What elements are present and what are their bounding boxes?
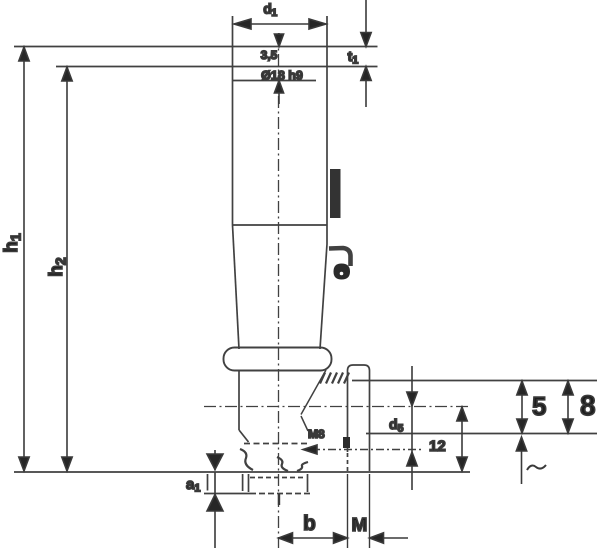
svg-text:h2: h2	[46, 257, 69, 277]
svg-text:d1: d1	[263, 1, 277, 20]
svg-text:a1: a1	[186, 476, 200, 495]
svg-text:M8: M8	[308, 427, 325, 441]
svg-text:h1: h1	[1, 233, 24, 253]
svg-text:Ø18 h9: Ø18 h9	[261, 69, 303, 83]
svg-text:12: 12	[429, 438, 446, 455]
svg-text:M: M	[352, 515, 368, 536]
svg-text:b: b	[303, 512, 316, 535]
svg-text:3,5: 3,5	[261, 48, 278, 62]
svg-text:t1: t1	[348, 48, 359, 67]
svg-text:5: 5	[532, 391, 546, 421]
svg-text:d5: d5	[389, 416, 404, 435]
svg-text:8: 8	[580, 390, 596, 421]
